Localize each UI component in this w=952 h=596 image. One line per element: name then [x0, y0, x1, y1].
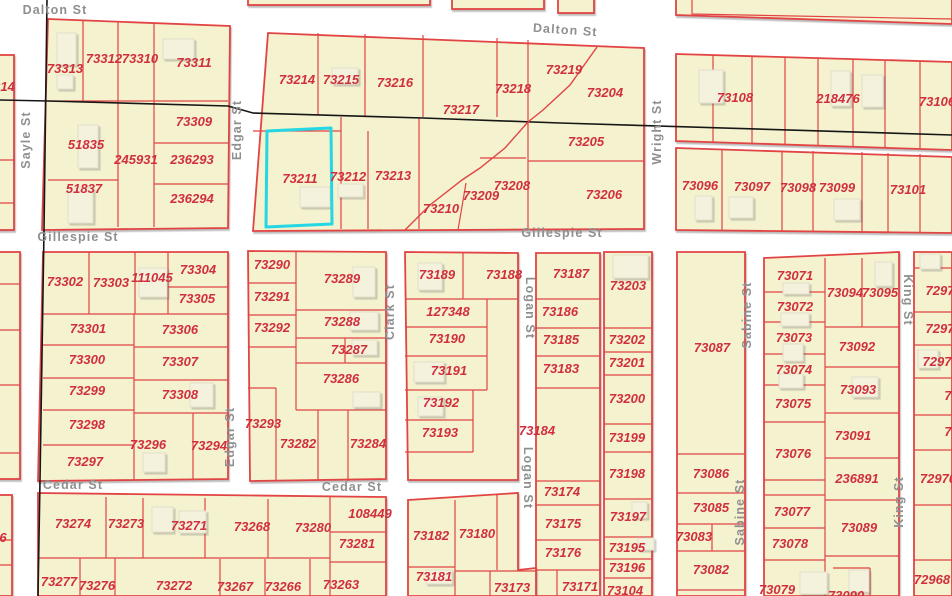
street-label: Dalton St: [532, 21, 598, 39]
parcel-label[interactable]: 73293: [245, 416, 282, 431]
parcel-label[interactable]: 73176: [545, 545, 582, 560]
parcel-label[interactable]: 73072: [777, 299, 814, 314]
street-label: Gillespie St: [521, 226, 602, 240]
parcel-label[interactable]: 73305: [179, 291, 216, 306]
parcel-label[interactable]: 73095: [862, 285, 899, 300]
street-label: Edgar St: [230, 100, 244, 160]
parcel-label[interactable]: 6: [0, 530, 7, 545]
parcel-label[interactable]: 73302: [47, 274, 84, 289]
parcel-label[interactable]: 73273: [108, 516, 145, 531]
parcel-label[interactable]: 73073: [776, 330, 813, 345]
parcel-label[interactable]: 73195: [609, 540, 646, 555]
parcel-label[interactable]: 73182: [413, 528, 450, 543]
parcel-label[interactable]: 73215: [323, 72, 360, 87]
parcel-label[interactable]: 73216: [377, 75, 414, 90]
parcel-label[interactable]: 73303: [93, 275, 130, 290]
parcel-label[interactable]: 72970: [920, 471, 952, 486]
parcel-label[interactable]: 73201: [609, 355, 645, 370]
parcel-label[interactable]: 73171: [562, 579, 598, 594]
parcel-label[interactable]: 111045: [131, 270, 173, 285]
parcel-label[interactable]: 72968: [914, 572, 951, 587]
parcel-label[interactable]: 73271: [171, 518, 207, 533]
parcel-label[interactable]: 73267: [217, 579, 254, 594]
parcel-label[interactable]: 73307: [162, 354, 199, 369]
parcel-label[interactable]: 73312: [86, 51, 123, 66]
parcel-label[interactable]: 73104: [607, 583, 644, 596]
parcel-label[interactable]: 73296: [130, 437, 167, 452]
street-label: Dalton St: [23, 3, 88, 17]
parcel-label[interactable]: 73287: [331, 342, 368, 357]
parcel-label[interactable]: 73106: [919, 94, 952, 109]
street-label: King St: [901, 274, 915, 325]
parcel-label[interactable]: 73108: [717, 90, 754, 105]
parcel-label[interactable]: 73077: [774, 504, 811, 519]
parcel-label[interactable]: 73219: [546, 62, 583, 77]
parcel-label[interactable]: 7297: [923, 354, 952, 369]
parcel-label[interactable]: 73288: [324, 314, 361, 329]
parcel-label[interactable]: 73309: [176, 114, 213, 129]
parcel-label[interactable]: 73292: [254, 320, 291, 335]
parcel-label[interactable]: 73263: [323, 577, 360, 592]
parcel-label[interactable]: 73311: [176, 55, 211, 70]
parcel-label[interactable]: 73297: [67, 454, 104, 469]
parcel-label[interactable]: 73208: [494, 178, 531, 193]
parcel-label[interactable]: 73298: [69, 417, 106, 432]
parcel-label[interactable]: 73184: [519, 423, 556, 438]
parcel-label[interactable]: 73076: [775, 446, 812, 461]
parcel-label[interactable]: 73284: [350, 436, 387, 451]
parcel-label[interactable]: 73098: [780, 180, 817, 195]
parcel-label[interactable]: 7: [944, 424, 952, 439]
parcel-label[interactable]: 73266: [265, 579, 302, 594]
parcel-label[interactable]: 73091: [835, 428, 871, 443]
parcel-label[interactable]: 108449: [348, 506, 392, 521]
parcel-label[interactable]: 73291: [254, 289, 290, 304]
parcel-label[interactable]: 214: [0, 79, 16, 94]
parcel-label[interactable]: 73082: [693, 562, 730, 577]
parcel-label[interactable]: 73089: [841, 520, 878, 535]
street-label: Sabine St: [733, 479, 747, 546]
parcel-label[interactable]: 73174: [544, 484, 581, 499]
parcel-label[interactable]: 73282: [280, 436, 317, 451]
parcel-label[interactable]: 73192: [423, 395, 460, 410]
parcel-label[interactable]: 73189: [419, 267, 456, 282]
map-canvas[interactable]: Dalton StDalton StSayle StEdgar StEdgar …: [0, 0, 952, 596]
parcel-label[interactable]: 73272: [156, 578, 193, 593]
parcel-label[interactable]: 73310: [122, 51, 159, 66]
street-label: Edgar St: [223, 407, 237, 467]
street-label: King St: [892, 476, 906, 527]
parcel-label[interactable]: 73079: [759, 582, 796, 596]
street-label: Gillespie St: [37, 230, 118, 244]
parcel-label[interactable]: 73281: [339, 536, 375, 551]
parcel-label[interactable]: 73276: [79, 578, 116, 593]
street-label: Sabine St: [740, 282, 754, 349]
parcel-label[interactable]: 73210: [423, 201, 460, 216]
parcel-label[interactable]: 73092: [839, 339, 876, 354]
parcel-label[interactable]: 73274: [55, 516, 92, 531]
selected-parcel-label[interactable]: 73211: [282, 171, 317, 186]
parcel-label[interactable]: 73205: [568, 134, 605, 149]
parcel-label[interactable]: 73086: [693, 466, 730, 481]
parcel-label[interactable]: 73301: [70, 321, 106, 336]
street-label: Logan St: [521, 447, 535, 509]
parcel-label[interactable]: 73181: [416, 569, 452, 584]
parcel-label[interactable]: 73173: [494, 580, 531, 595]
parcel-label[interactable]: 7297: [926, 321, 952, 336]
parcel-label[interactable]: 73097: [734, 179, 771, 194]
parcel-label[interactable]: 7: [944, 388, 952, 403]
parcel-label[interactable]: 73187: [553, 266, 590, 281]
parcel-label[interactable]: 73183: [543, 361, 580, 376]
parcel-label[interactable]: 73175: [545, 516, 582, 531]
parcel-label[interactable]: 73200: [609, 391, 646, 406]
parcel-label[interactable]: 73074: [776, 362, 813, 377]
parcel-label[interactable]: 51835: [68, 137, 105, 152]
parcel-label[interactable]: 7297: [926, 283, 952, 298]
parcel-label[interactable]: 73299: [69, 383, 106, 398]
street-label: Clark St: [383, 284, 397, 340]
parcel-label[interactable]: 73075: [775, 396, 812, 411]
parcel-label[interactable]: 73304: [180, 262, 217, 277]
parcel-label[interactable]: 73214: [279, 72, 316, 87]
parcel-label[interactable]: 73300: [69, 352, 106, 367]
parcel-label[interactable]: 73191: [431, 363, 467, 378]
parcel-label[interactable]: 73313: [47, 61, 84, 76]
street-label: Cedar St: [322, 480, 382, 494]
parcel-label[interactable]: 73093: [840, 382, 877, 397]
parcel-label[interactable]: 73197: [610, 509, 647, 524]
parcel-label[interactable]: 73277: [41, 574, 78, 589]
map-viewport[interactable]: Dalton StDalton StSayle StEdgar StEdgar …: [0, 0, 952, 596]
parcel-label[interactable]: 73218: [495, 81, 532, 96]
parcel-label[interactable]: 127348: [426, 304, 470, 319]
parcel-label[interactable]: 73306: [162, 322, 199, 337]
parcel-label[interactable]: 73099: [819, 180, 856, 195]
parcel-label[interactable]: 73199: [609, 430, 646, 445]
parcel-label[interactable]: 73202: [609, 332, 646, 347]
parcel-label[interactable]: 73085: [693, 500, 730, 515]
parcel-label[interactable]: 73190: [429, 331, 466, 346]
parcel-label[interactable]: 73094: [827, 285, 864, 300]
parcel-label[interactable]: 73203: [610, 278, 647, 293]
parcel-label[interactable]: 73280: [295, 520, 332, 535]
parcel-label[interactable]: 73090: [828, 588, 865, 596]
parcel-label[interactable]: 218476: [815, 91, 860, 106]
parcel-label[interactable]: 73083: [676, 529, 713, 544]
parcel-label[interactable]: 73186: [542, 304, 579, 319]
parcel-label[interactable]: 73198: [609, 466, 646, 481]
parcel-label[interactable]: 245931: [113, 152, 157, 167]
street-label: Logan St: [523, 277, 537, 339]
parcel-label[interactable]: 73213: [375, 168, 412, 183]
parcel-label[interactable]: 73217: [443, 102, 480, 117]
parcel-label[interactable]: 73180: [459, 526, 496, 541]
parcel-label[interactable]: 73268: [234, 519, 271, 534]
parcel-label[interactable]: 73212: [330, 169, 367, 184]
street-label: Wright St: [650, 99, 664, 164]
parcel-label[interactable]: 236294: [169, 191, 214, 206]
parcel-label[interactable]: 73204: [587, 85, 624, 100]
parcel-label[interactable]: 73289: [324, 271, 361, 286]
parcel-label[interactable]: 73071: [777, 268, 813, 283]
parcel-label[interactable]: 73290: [254, 257, 291, 272]
parcel-label[interactable]: 236891: [834, 471, 878, 486]
parcel-label[interactable]: 73193: [422, 425, 459, 440]
street-label: Sayle St: [19, 111, 33, 168]
parcel-label[interactable]: 73286: [323, 371, 360, 386]
parcel-label[interactable]: 73087: [694, 340, 731, 355]
parcel-label[interactable]: 73185: [543, 332, 580, 347]
street-label: Cedar St: [43, 478, 103, 492]
parcel-label[interactable]: 51837: [66, 181, 103, 196]
parcel-label[interactable]: 73308: [162, 387, 199, 402]
parcel-label[interactable]: 73101: [890, 182, 926, 197]
parcel-label[interactable]: 73196: [609, 560, 646, 575]
parcel-label[interactable]: 73078: [772, 536, 809, 551]
parcel-label[interactable]: 73096: [682, 178, 719, 193]
parcel-label[interactable]: 73294: [191, 438, 228, 453]
parcel-label[interactable]: 73206: [586, 187, 623, 202]
parcel-label[interactable]: 236293: [169, 152, 214, 167]
parcel-label[interactable]: 73188: [486, 267, 523, 282]
